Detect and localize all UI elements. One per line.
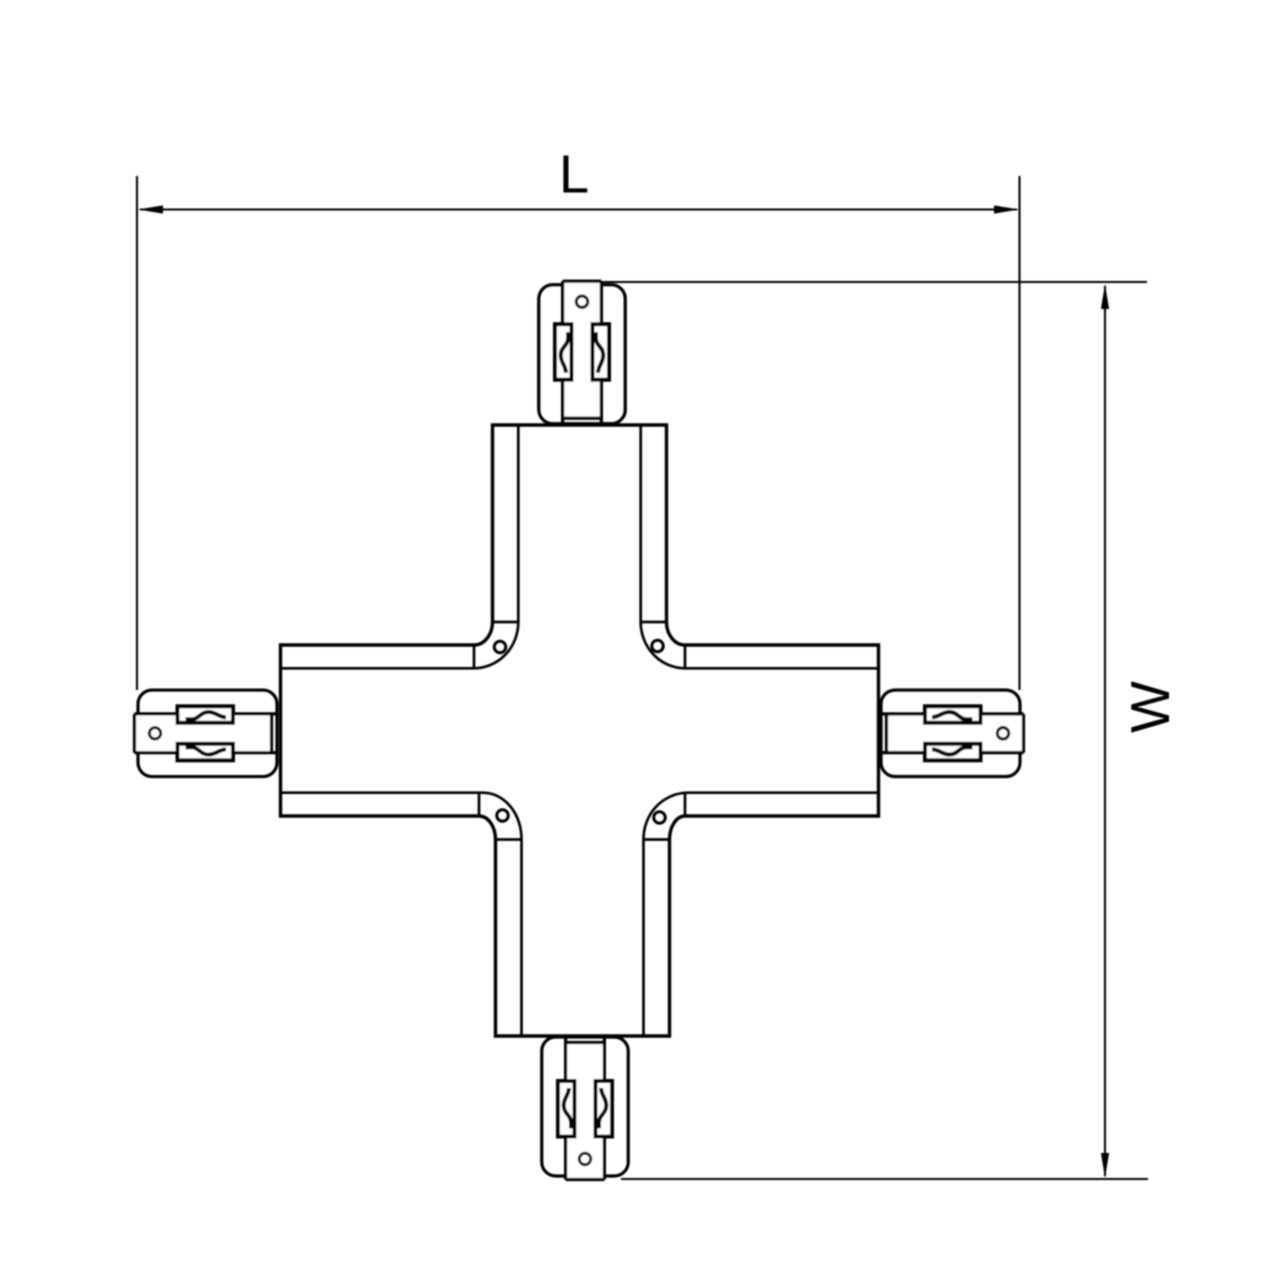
svg-text:W: W [1119,681,1181,733]
svg-text:L: L [559,145,589,205]
